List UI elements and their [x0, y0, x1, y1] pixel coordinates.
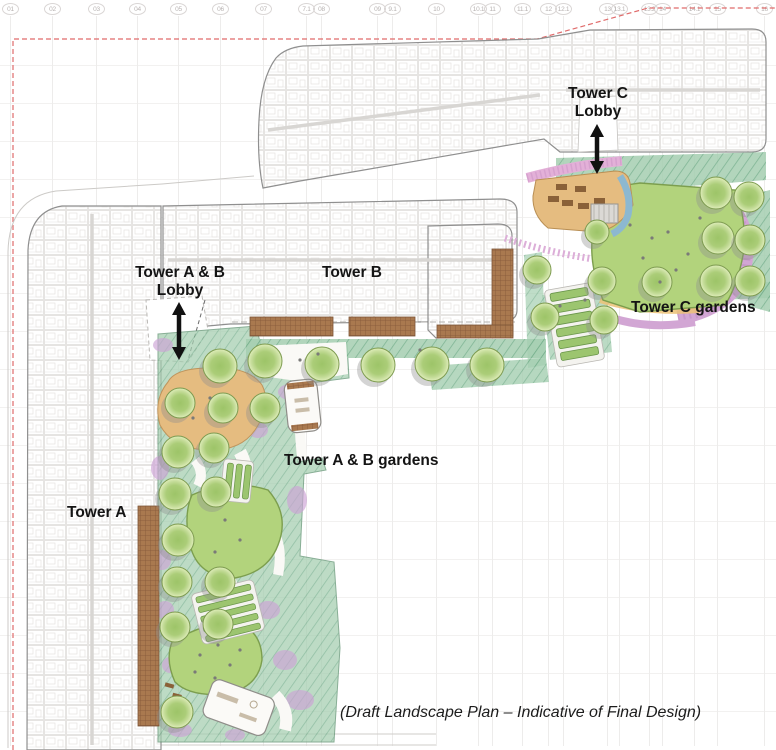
- tree-icon: [162, 436, 194, 468]
- tree-icon: [702, 222, 734, 254]
- tree-icon: [735, 266, 765, 296]
- tree-icon: [642, 267, 672, 297]
- tree-icon: [523, 256, 551, 284]
- garden-pavilion-north: [283, 378, 321, 433]
- tree-icon: [203, 349, 237, 383]
- tree-icon: [201, 477, 231, 507]
- tree-icon: [162, 524, 194, 556]
- label-tower-ab-lobby: Tower A & B Lobby: [124, 264, 236, 300]
- label-tower-c-lobby: Tower C Lobby: [546, 85, 650, 121]
- label-line: Tower C: [546, 85, 650, 103]
- label-tower-a: Tower A: [67, 504, 126, 522]
- label-line: Lobby: [546, 103, 650, 121]
- tree-icon: [208, 393, 238, 423]
- tree-icon: [588, 267, 616, 295]
- tree-icon: [361, 348, 395, 382]
- tree-icon: [585, 220, 609, 244]
- tree-icon: [734, 182, 764, 212]
- tree-icon: [531, 303, 559, 331]
- label-tower-ab-gardens: Tower A & B gardens: [284, 452, 438, 470]
- tree-icon: [735, 225, 765, 255]
- landscape-plan: 010203040506077.108099.11010.11111.11212…: [0, 0, 776, 750]
- tree-icon: [248, 344, 282, 378]
- tree-icon: [199, 433, 229, 463]
- tree-icon: [700, 177, 732, 209]
- tree-icon: [415, 347, 449, 381]
- tree-icon: [162, 567, 192, 597]
- tree-icon: [203, 609, 233, 639]
- tree-icon: [470, 348, 504, 382]
- label-tower-b: Tower B: [322, 264, 382, 282]
- label-tower-c-gardens: Tower C gardens: [631, 299, 756, 317]
- tree-icon: [590, 306, 618, 334]
- tree-icon: [700, 265, 732, 297]
- caption: (Draft Landscape Plan – Indicative of Fi…: [340, 704, 776, 722]
- label-line: Tower A & B: [124, 264, 236, 282]
- tree-icon: [160, 612, 190, 642]
- site-plan-drawing: [0, 0, 776, 750]
- label-line: Lobby: [124, 282, 236, 300]
- tree-icon: [161, 696, 193, 728]
- tree-icon: [159, 478, 191, 510]
- tree-icon: [165, 388, 195, 418]
- tree-icon: [205, 567, 235, 597]
- tree-icon: [305, 347, 339, 381]
- tree-icon: [250, 393, 280, 423]
